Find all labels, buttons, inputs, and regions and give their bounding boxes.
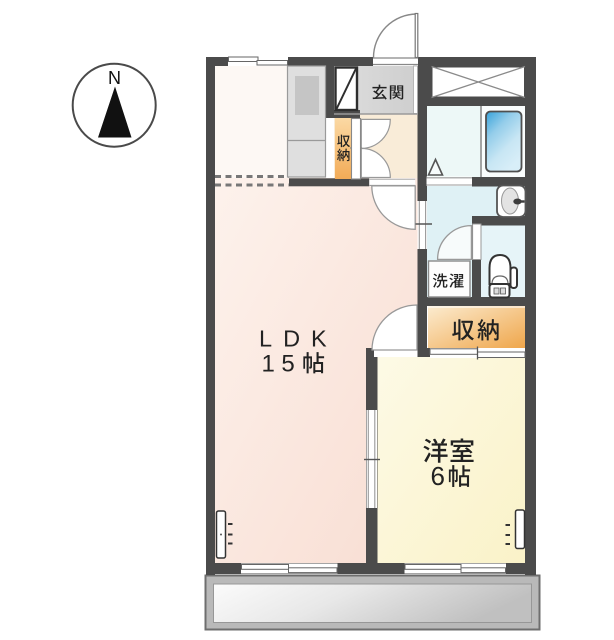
svg-text:6: 6 bbox=[431, 461, 445, 491]
svg-text:N: N bbox=[108, 68, 121, 88]
svg-text:LDK: LDK bbox=[259, 326, 338, 352]
svg-text:15: 15 bbox=[262, 351, 302, 378]
